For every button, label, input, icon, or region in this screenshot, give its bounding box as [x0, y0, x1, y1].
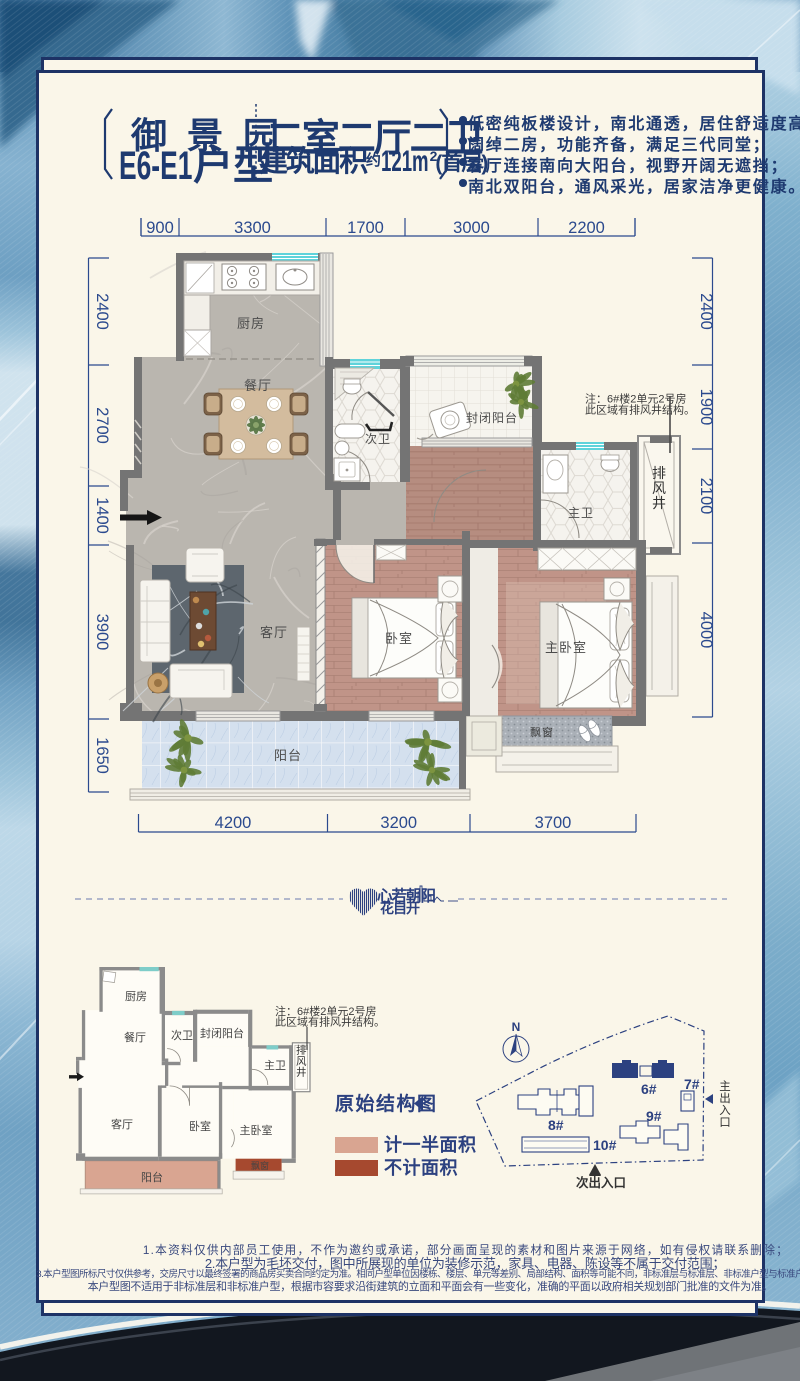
svg-text:3000: 3000: [453, 219, 490, 237]
svg-text:主卧室: 主卧室: [240, 1123, 273, 1137]
svg-text:3300: 3300: [234, 219, 271, 237]
svg-text:3700: 3700: [535, 814, 572, 832]
svg-text:1700: 1700: [347, 219, 384, 237]
svg-text:客厅: 客厅: [111, 1117, 133, 1131]
svg-text:次卫: 次卫: [171, 1028, 193, 1042]
svg-text:2100: 2100: [697, 478, 715, 515]
svg-text:3200: 3200: [380, 814, 417, 832]
svg-text:1900: 1900: [697, 389, 715, 426]
svg-text:厨房: 厨房: [237, 316, 265, 331]
svg-text:主卧室: 主卧室: [545, 640, 587, 655]
svg-text:花自开: 花自开: [380, 900, 420, 916]
svg-text:N: N: [512, 1020, 521, 1034]
svg-text:3900: 3900: [93, 614, 111, 651]
svg-text:计一半面积: 计一半面积: [384, 1134, 477, 1155]
svg-text:10#: 10#: [593, 1137, 617, 1153]
svg-text:卧室: 卧室: [385, 631, 413, 646]
svg-text:飘窗: 飘窗: [251, 1160, 269, 1171]
svg-text:客厅: 客厅: [260, 625, 288, 640]
svg-text:餐厅: 餐厅: [244, 378, 272, 393]
svg-text:2700: 2700: [93, 407, 111, 444]
svg-text:900: 900: [146, 219, 174, 237]
svg-text:此区域有排风井结构。: 此区域有排风井结构。: [275, 1015, 385, 1029]
svg-text:6#: 6#: [641, 1081, 657, 1097]
svg-text:1400: 1400: [93, 497, 111, 534]
svg-text:封闭阳台: 封闭阳台: [466, 410, 518, 425]
svg-text:排风井: 排风井: [296, 1044, 307, 1079]
svg-text:飘窗: 飘窗: [530, 725, 554, 739]
svg-text:卧室: 卧室: [189, 1119, 211, 1133]
svg-text:主卫: 主卫: [264, 1059, 286, 1072]
svg-text:主出入口: 主出入口: [719, 1080, 731, 1129]
svg-text:此区域有排风井结构。: 此区域有排风井结构。: [585, 403, 695, 417]
svg-text:次出入口: 次出入口: [576, 1175, 626, 1190]
svg-text:4000: 4000: [697, 612, 715, 649]
svg-text:次卫: 次卫: [365, 432, 391, 446]
svg-text:排风井: 排风井: [652, 465, 666, 511]
svg-text:1650: 1650: [93, 737, 111, 774]
svg-text:4200: 4200: [215, 814, 252, 832]
svg-text:7#: 7#: [684, 1076, 700, 1092]
svg-text:厨房: 厨房: [125, 990, 147, 1003]
svg-text:阳台: 阳台: [274, 748, 302, 763]
svg-text:2400: 2400: [93, 293, 111, 330]
svg-text:不计面积: 不计面积: [384, 1157, 458, 1178]
svg-text:9#: 9#: [646, 1108, 662, 1124]
svg-text:封闭阳台: 封闭阳台: [200, 1026, 244, 1040]
svg-text:阳台: 阳台: [141, 1170, 163, 1184]
svg-text:主卫: 主卫: [568, 506, 594, 520]
svg-text:2400: 2400: [697, 293, 715, 330]
svg-text:餐厅: 餐厅: [124, 1030, 146, 1044]
svg-text:2200: 2200: [568, 219, 605, 237]
svg-text:注：6#楼2单元2号房: 注：6#楼2单元2号房: [585, 392, 686, 406]
svg-text:8#: 8#: [548, 1117, 564, 1133]
